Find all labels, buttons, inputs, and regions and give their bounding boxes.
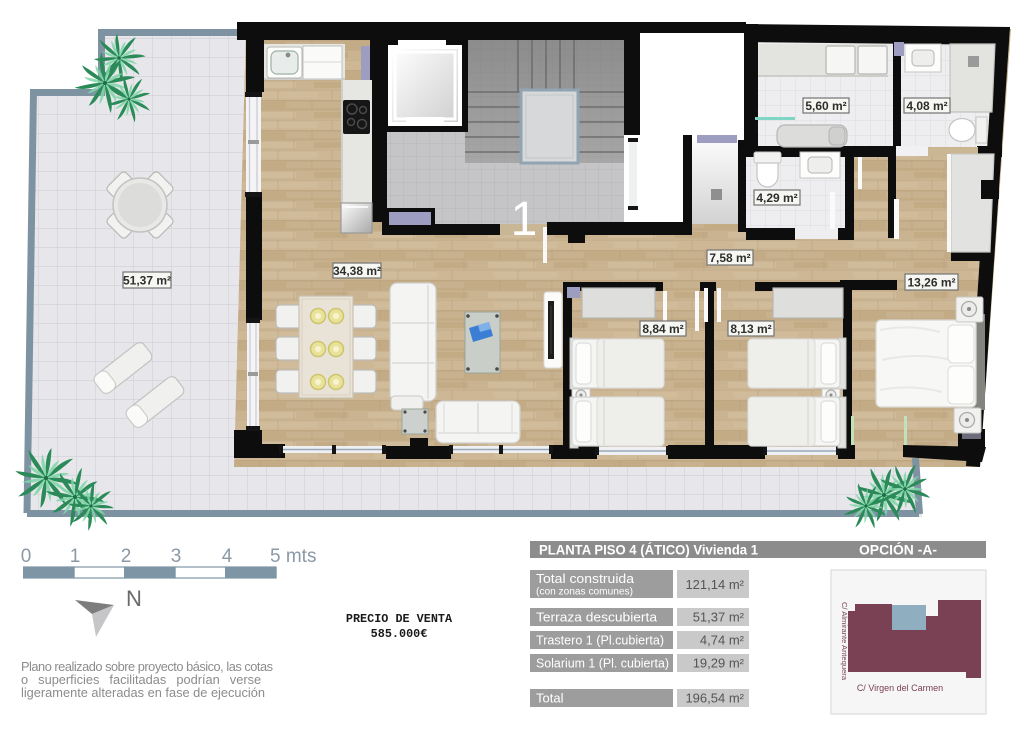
svg-text:51,37 m²: 51,37 m² <box>693 610 745 625</box>
svg-text:13,26 m²: 13,26 m² <box>907 276 955 290</box>
svg-text:PRECIO DE VENTA: PRECIO DE VENTA <box>346 612 453 626</box>
svg-text:ligeramente alteradas en fase: ligeramente alteradas en fase de ejecuci… <box>21 685 265 700</box>
svg-text:34,38 m²: 34,38 m² <box>333 264 381 278</box>
svg-text:19,29 m²: 19,29 m² <box>693 656 745 671</box>
svg-text:Trastero 1 (Pl.cubierta): Trastero 1 (Pl.cubierta) <box>536 634 664 648</box>
svg-text:PLANTA PISO 4 (ÁTICO) Vivienda: PLANTA PISO 4 (ÁTICO) Vivienda 1 <box>539 542 758 558</box>
svg-text:4,29 m²: 4,29 m² <box>756 191 797 205</box>
svg-text:4,08 m²: 4,08 m² <box>906 99 947 113</box>
svg-text:2: 2 <box>121 546 132 567</box>
svg-text:1: 1 <box>511 193 538 246</box>
svg-text:51,37 m²: 51,37 m² <box>123 274 171 288</box>
svg-text:OPCIÓN -A-: OPCIÓN -A- <box>859 541 937 558</box>
svg-text:5 mts: 5 mts <box>270 546 316 567</box>
svg-text:121,14 m²: 121,14 m² <box>685 577 744 592</box>
svg-text:585.000€: 585.000€ <box>371 627 428 641</box>
svg-text:196,54 m²: 196,54 m² <box>685 691 744 706</box>
svg-text:4: 4 <box>222 546 233 567</box>
svg-text:4,74 m²: 4,74 m² <box>700 633 745 648</box>
svg-text:1: 1 <box>70 546 81 567</box>
svg-text:8,13 m²: 8,13 m² <box>730 322 771 336</box>
svg-text:8,84 m²: 8,84 m² <box>642 322 683 336</box>
svg-text:3: 3 <box>171 546 182 567</box>
svg-text:7,58 m²: 7,58 m² <box>709 251 750 265</box>
svg-text:Solarium 1 (Pl. cubierta): Solarium 1 (Pl. cubierta) <box>536 657 669 671</box>
svg-text:C/ Almirante Antequera: C/ Almirante Antequera <box>840 602 849 681</box>
svg-text:5,60 m²: 5,60 m² <box>805 99 846 113</box>
svg-text:(con zonas comunes): (con zonas comunes) <box>536 587 633 598</box>
svg-text:N: N <box>126 586 142 611</box>
svg-text:0: 0 <box>21 546 32 567</box>
svg-text:Total construida: Total construida <box>536 571 635 586</box>
svg-text:Terraza descubierta: Terraza descubierta <box>536 610 658 625</box>
svg-text:Total: Total <box>536 691 564 706</box>
svg-text:C/ Virgen del Carmen: C/ Virgen del Carmen <box>857 683 943 693</box>
